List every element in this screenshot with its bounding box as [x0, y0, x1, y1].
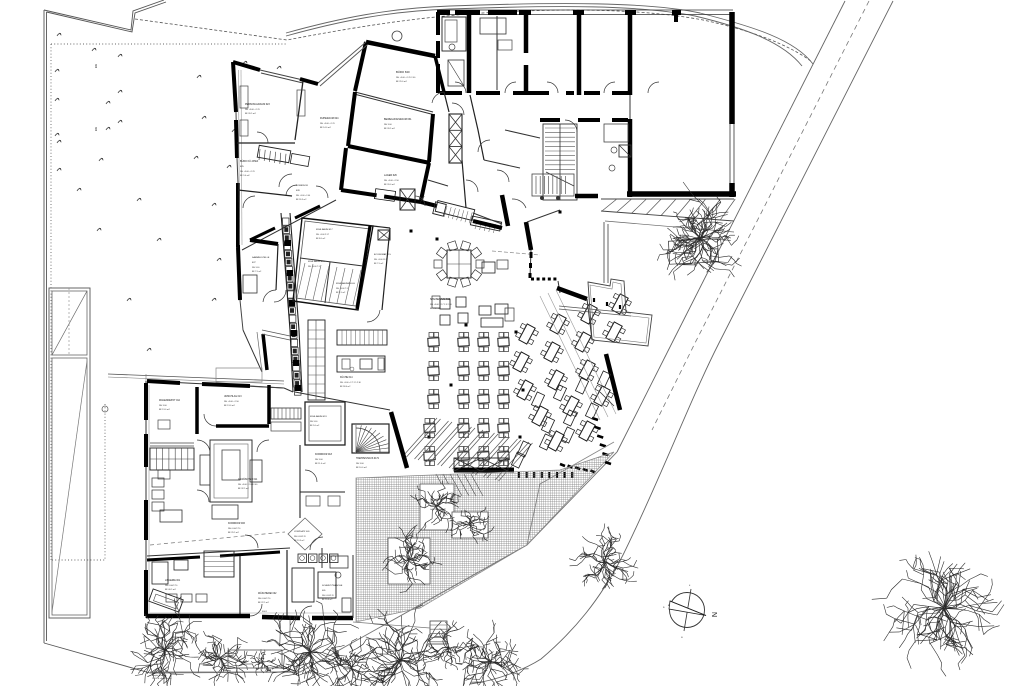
- svg-text:KÜCHE 614: KÜCHE 614: [340, 376, 353, 379]
- svg-text:ECONOMAT 615: ECONOMAT 615: [374, 253, 391, 256]
- svg-text:1:200 M alle Angaben: 1:200 M alle Angaben: [152, 677, 171, 680]
- svg-text:RH +3.00 13.5: RH +3.00 13.5: [374, 259, 388, 261]
- svg-text:RH 0.00/2.70: RH 0.00/2.70: [165, 585, 178, 587]
- svg-text:SCHMUTZWÄSCHE: SCHMUTZWÄSCHE: [322, 584, 343, 587]
- svg-text:BF 22.5 m2: BF 22.5 m2: [258, 602, 270, 604]
- svg-text:BF 13.0 m2: BF 13.0 m2: [224, 405, 236, 407]
- svg-text:WAGENDEPOT 012: WAGENDEPOT 012: [159, 399, 181, 402]
- svg-text:SAMMELSTELLE: SAMMELSTELLE: [252, 256, 270, 259]
- svg-text:PERSONALRAUM 623: PERSONALRAUM 623: [245, 103, 270, 106]
- svg-text:RH 0.00/2.70: RH 0.00/2.70: [228, 528, 241, 530]
- svg-text:BF 9.0 m2: BF 9.0 m2: [240, 175, 250, 177]
- svg-text:N: N: [710, 612, 717, 617]
- svg-text:BF 40.5 m2: BF 40.5 m2: [165, 589, 177, 591]
- svg-text:RH +3.00 +2.50: RH +3.00 +2.50: [384, 180, 400, 182]
- svg-text:KÜHLRAUM 616: KÜHLRAUM 616: [308, 260, 325, 263]
- svg-text:RH +3.00 7.5: RH +3.00 7.5: [336, 288, 349, 290]
- svg-text:UMSCHLAG 013: UMSCHLAG 013: [224, 395, 242, 398]
- svg-text:SPIELPLATZ: SPIELPLATZ: [394, 562, 407, 565]
- svg-text:RH 3.00: RH 3.00: [310, 421, 318, 423]
- svg-text:RH +3.00 +2.70: RH +3.00 +2.70: [240, 171, 256, 173]
- svg-text:KORRIDOR: KORRIDOR: [296, 185, 308, 187]
- svg-text:BF 26.5 m2: BF 26.5 m2: [384, 128, 396, 130]
- svg-text:TREPPENHAUS 017b: TREPPENHAUS 017b: [356, 457, 380, 460]
- svg-text:K001: K001: [262, 611, 268, 613]
- svg-text:BF 8.0 m2: BF 8.0 m2: [316, 238, 326, 240]
- svg-text:SPEISESAAL 612: SPEISESAAL 612: [430, 298, 451, 301]
- svg-text:BF 98.0 m2: BF 98.0 m2: [340, 386, 351, 388]
- svg-text:BF 7.5 m2: BF 7.5 m2: [374, 263, 384, 265]
- svg-text:BF 7.5 m2: BF 7.5 m2: [252, 271, 262, 273]
- svg-text:KORRIDOR 018: KORRIDOR 018: [315, 454, 333, 456]
- svg-text:BF 26.5 m2: BF 26.5 m2: [245, 113, 257, 115]
- svg-text:BF 20.0 m2: BF 20.0 m2: [384, 184, 396, 186]
- svg-text:RH +3.00 +2.50: RH +3.00 +2.50: [224, 401, 240, 403]
- svg-text:BF 11.0 m2: BF 11.0 m2: [315, 463, 326, 465]
- svg-text:GARTEN 100.0: GARTEN 100.0: [430, 508, 445, 511]
- svg-text:RH 3.00: RH 3.00: [159, 405, 167, 407]
- svg-text:BÜRO 630: BÜRO 630: [396, 70, 410, 74]
- svg-text:RH 0.00/2.70: RH 0.00/2.70: [258, 598, 271, 600]
- svg-text:RH +3.00 +2.40: RH +3.00 +2.40: [296, 195, 311, 197]
- svg-text:LINGERIE 001: LINGERIE 001: [165, 580, 181, 582]
- svg-text:RH 0.00/2.70: RH 0.00/2.70: [294, 536, 307, 538]
- svg-text:BF 13.0 m2: BF 13.0 m2: [159, 409, 171, 411]
- svg-text:BF 7.5 m2: BF 7.5 m2: [336, 292, 346, 294]
- svg-text:BF 26.5 m2: BF 26.5 m2: [296, 199, 307, 201]
- svg-text:BF 29.0 m2: BF 29.0 m2: [396, 81, 408, 83]
- svg-text:RH 3.00: RH 3.00: [356, 463, 364, 465]
- svg-text:KÜHLRAUMZELLE: KÜHLRAUMZELLE: [336, 282, 356, 285]
- svg-text:BF 29.5 m2: BF 29.5 m2: [228, 532, 240, 534]
- svg-text:RH 3.00: RH 3.00: [384, 124, 392, 126]
- svg-text:888: 888: [94, 64, 97, 69]
- svg-text:RUHERAUM 624: RUHERAUM 624: [320, 117, 339, 120]
- svg-text:RH 3.00: RH 3.00: [252, 267, 260, 269]
- svg-text:BF 14.0 m2: BF 14.0 m2: [320, 127, 332, 129]
- svg-text:Projekt Nummer: Projekt Nummer: [152, 674, 167, 677]
- svg-text:VORPLATZ 001: VORPLATZ 001: [294, 530, 310, 533]
- svg-text:LAGER 626: LAGER 626: [384, 174, 397, 177]
- svg-text:BF 13.5 m2: BF 13.5 m2: [294, 540, 305, 542]
- svg-text:RH 3.00: RH 3.00: [315, 459, 323, 461]
- svg-text:KORRIDOR 006: KORRIDOR 006: [228, 523, 246, 525]
- svg-text:RH 0.00/2.70: RH 0.00/2.70: [322, 595, 335, 597]
- svg-text:BÜRO KÜ-CHEF: BÜRO KÜ-CHEF: [240, 160, 259, 163]
- svg-text:KÜHLRAUM 019: KÜHLRAUM 019: [310, 415, 327, 418]
- svg-text:RH +3.00 2.57: RH +3.00 2.57: [316, 234, 330, 236]
- svg-text:KÜHLRAUM 617: KÜHLRAUM 617: [316, 228, 333, 231]
- svg-text:BF 10.0 m2: BF 10.0 m2: [356, 467, 368, 469]
- svg-text:RH +3.00 +2.70 2.00: RH +3.00 +2.70 2.00: [396, 77, 416, 79]
- svg-text:RH +3.00 7.5: RH +3.00 7.5: [308, 266, 321, 268]
- svg-text:WÄSCHEREI 002: WÄSCHEREI 002: [258, 592, 277, 595]
- svg-text:RH +3.00 +2.70: RH +3.00 +2.70: [245, 109, 261, 111]
- svg-text:888: 888: [94, 127, 97, 132]
- svg-text:RH +3.00 +2.70: RH +3.00 +2.70: [320, 123, 336, 125]
- svg-text:BF 9.0 m2: BF 9.0 m2: [310, 425, 320, 427]
- svg-text:BF 20.0 m2: BF 20.0 m2: [322, 599, 333, 601]
- svg-text:RH +3.00 +2.7 2.5 2.30: RH +3.00 +2.7 2.5 2.30: [430, 304, 452, 306]
- svg-text:BEWEGUNGSRAUM 631: BEWEGUNGSRAUM 631: [384, 118, 412, 121]
- svg-text:RH +3.00 +2.7 2.5 2.30: RH +3.00 +2.7 2.5 2.30: [340, 382, 362, 384]
